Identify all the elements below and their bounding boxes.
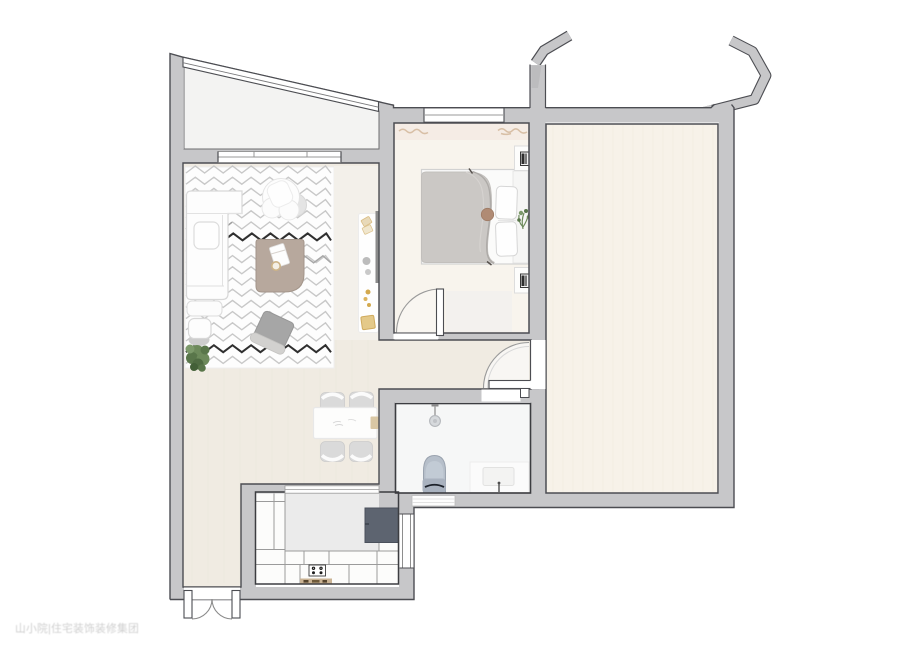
svg-text:山小院|住宅装饰装修集团: 山小院|住宅装饰装修集团 <box>15 621 139 635</box>
